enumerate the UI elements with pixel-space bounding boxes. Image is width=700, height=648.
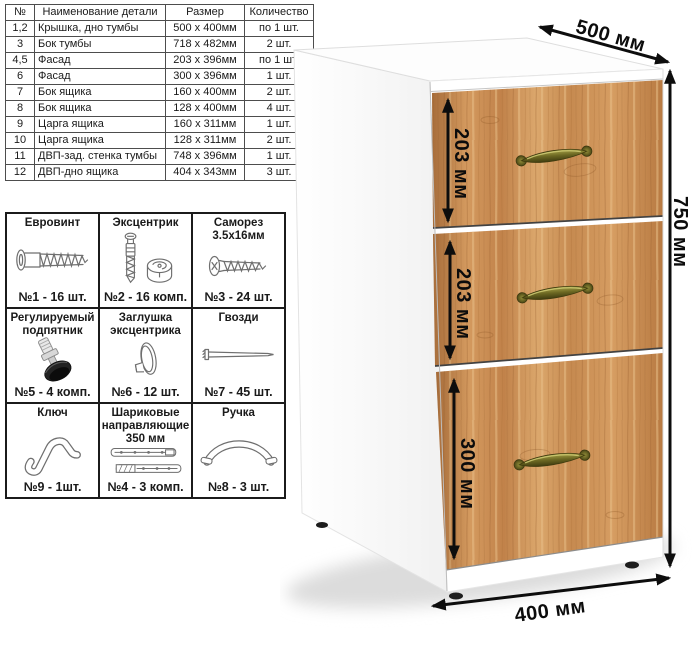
nail-icon — [200, 325, 278, 385]
hardware-grid: Евровинт №1 - 16 шт. Эксцентрик — [5, 212, 286, 499]
table-row: 4,5 Фасад 203 x 396мм по 1 шт. — [6, 53, 314, 69]
euro-screw-icon — [13, 230, 93, 290]
adjustable-foot-icon — [24, 338, 82, 385]
hardware-title: Ключ — [37, 407, 67, 420]
hardware-qty: №2 - 16 комп. — [104, 290, 187, 304]
dimension-label-height: 750 мм — [669, 196, 691, 268]
table-row: 12 ДВП-дно ящика 404 x 343мм 3 шт. — [6, 165, 314, 181]
hardware-cell-cam-lock: Эксцентрик — [100, 214, 191, 307]
dimension-label-depth: 500 мм — [573, 16, 648, 57]
cabinet-foot — [449, 593, 463, 600]
dimension-label-drawer3: 300 мм — [456, 438, 478, 510]
hardware-qty: №9 - 1шт. — [24, 480, 82, 494]
header-size: Размер — [166, 5, 245, 21]
cam-cover-icon — [120, 338, 172, 385]
hardware-qty: №6 - 12 шт. — [111, 385, 179, 399]
table-row: 11 ДВП-зад. стенка тумбы 748 x 396мм 1 ш… — [6, 149, 314, 165]
table-row: 10 Царга ящика 128 x 311мм 2 шт. — [6, 133, 314, 149]
header-num: № — [6, 5, 35, 21]
header-name: Наименование детали — [35, 5, 166, 21]
bow-handle-icon — [199, 420, 279, 480]
cabinet-side-panel — [294, 50, 447, 592]
cam-key-icon — [21, 420, 85, 480]
assembly-instruction-page: { "parts_table": { "headers": { "num": "… — [0, 0, 700, 648]
table-row: 1,2 Крышка, дно тумбы 500 x 400мм по 1 ш… — [6, 21, 314, 37]
cabinet-foot — [316, 522, 328, 528]
dimension-label-width: 400 мм — [513, 595, 587, 627]
cabinet-foot — [625, 562, 639, 569]
cabinet-diagram: 500 мм 750 мм 400 мм 203 мм 203 мм 300 м… — [280, 0, 700, 648]
hardware-cell-ball-bearing-slides: Шариковые направляющие 350 мм №4 - 3 ком… — [100, 404, 191, 497]
hardware-cell-euro-screw: Евровинт №1 - 16 шт. — [7, 214, 98, 307]
hardware-cell-cam-key: Ключ №9 - 1шт. — [7, 404, 98, 497]
dimension-label-drawer2: 203 мм — [452, 268, 474, 340]
hardware-title: Эксцентрик — [112, 217, 178, 230]
table-row: 3 Бок тумбы 718 x 482мм 2 шт. — [6, 37, 314, 53]
hardware-title: Заглушка эксцентрика — [102, 312, 189, 338]
hardware-qty: №8 - 3 шт. — [208, 480, 269, 494]
hardware-qty: №4 - 3 комп. — [107, 480, 183, 494]
hardware-title: Регулируемый подпятник — [9, 312, 96, 338]
hardware-cell-adjustable-foot: Регулируемый подпятник №5 - 4 комп. — [7, 309, 98, 402]
parts-table: № Наименование детали Размер Количество … — [5, 4, 314, 181]
hardware-title: Ручка — [222, 407, 255, 420]
ball-bearing-slides-icon — [104, 446, 188, 480]
hardware-qty: №7 - 45 шт. — [204, 385, 272, 399]
hardware-title: Шариковые направляющие 350 мм — [102, 407, 190, 446]
table-row: 7 Бок ящика 160 x 400мм 2 шт. — [6, 85, 314, 101]
table-header-row: № Наименование детали Размер Количество — [6, 5, 314, 21]
dimension-label-drawer1: 203 мм — [450, 128, 472, 200]
hardware-cell-nail: Гвозди №7 - 45 шт. — [193, 309, 284, 402]
hardware-title: Гвозди — [218, 312, 258, 325]
hardware-cell-bow-handle: Ручка №8 - 3 шт. — [193, 404, 284, 497]
hardware-title: Евровинт — [25, 217, 81, 230]
hardware-title: Саморез 3.5х16мм — [195, 217, 282, 243]
hardware-qty: №1 - 16 шт. — [18, 290, 86, 304]
self-tapping-screw-icon — [206, 243, 272, 290]
table-row: 9 Царга ящика 160 x 311мм 1 шт. — [6, 117, 314, 133]
table-row: 6 Фасад 300 x 396мм 1 шт. — [6, 69, 314, 85]
table-row: 8 Бок ящика 128 x 400мм 4 шт. — [6, 101, 314, 117]
hardware-qty: №5 - 4 комп. — [14, 385, 90, 399]
hardware-cell-self-tapping-screw: Саморез 3.5х16мм №3 - 24 шт. — [193, 214, 284, 307]
hardware-cell-cam-cover: Заглушка эксцентрика №6 - 12 шт. — [100, 309, 191, 402]
cam-lock-icon — [113, 230, 179, 290]
hardware-qty: №3 - 24 шт. — [204, 290, 272, 304]
